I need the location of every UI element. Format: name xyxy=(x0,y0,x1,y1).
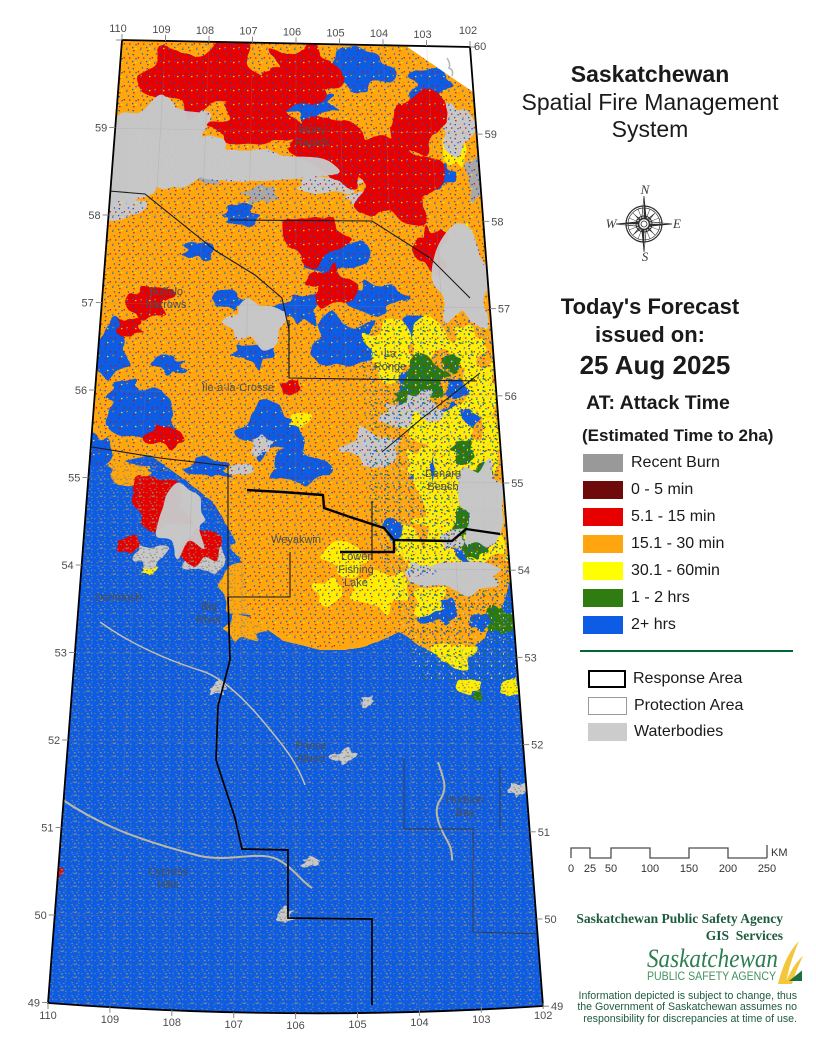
svg-text:Lower: Lower xyxy=(341,551,371,563)
svg-text:W: W xyxy=(606,216,618,231)
svg-text:Fishing: Fishing xyxy=(338,564,373,576)
svg-text:54: 54 xyxy=(61,560,73,572)
svg-text:108: 108 xyxy=(196,25,214,37)
svg-text:105: 105 xyxy=(348,1019,366,1031)
svg-text:57: 57 xyxy=(82,298,94,310)
svg-text:103: 103 xyxy=(413,29,431,41)
svg-text:Narrows: Narrows xyxy=(146,299,187,311)
svg-text:104: 104 xyxy=(370,28,388,40)
svg-text:S: S xyxy=(642,249,649,264)
svg-text:Beach: Beach xyxy=(427,481,458,493)
svg-text:Albert: Albert xyxy=(297,753,326,765)
svg-text:250: 250 xyxy=(758,863,776,875)
svg-text:107: 107 xyxy=(239,26,257,38)
svg-text:60: 60 xyxy=(474,41,486,53)
svg-text:Weyakwin: Weyakwin xyxy=(271,534,321,546)
svg-text:50: 50 xyxy=(605,863,617,875)
svg-text:50: 50 xyxy=(35,910,47,922)
svg-text:La: La xyxy=(384,348,397,360)
svg-text:53: 53 xyxy=(55,648,67,660)
svg-text:Hudson: Hudson xyxy=(446,794,484,806)
svg-text:E: E xyxy=(672,216,681,231)
svg-text:Denare: Denare xyxy=(425,468,461,480)
svg-text:59: 59 xyxy=(485,129,497,141)
svg-text:Ronge: Ronge xyxy=(374,361,406,373)
svg-text:25: 25 xyxy=(584,863,596,875)
svg-text:104: 104 xyxy=(410,1017,428,1029)
svg-text:Cypress: Cypress xyxy=(148,866,189,878)
svg-text:River: River xyxy=(196,614,222,626)
svg-text:103: 103 xyxy=(472,1014,490,1026)
svg-text:Big: Big xyxy=(201,601,217,613)
svg-text:108: 108 xyxy=(163,1017,181,1029)
svg-text:Rapids: Rapids xyxy=(295,137,330,149)
svg-text:Buffalo: Buffalo xyxy=(149,286,183,298)
svg-text:Lake: Lake xyxy=(344,577,368,589)
svg-text:150: 150 xyxy=(680,863,698,875)
svg-text:58: 58 xyxy=(491,216,503,228)
svg-text:110: 110 xyxy=(109,23,127,35)
svg-text:49: 49 xyxy=(28,998,40,1010)
svg-text:106: 106 xyxy=(286,1020,304,1032)
svg-text:PUBLIC SAFETY AGENCY: PUBLIC SAFETY AGENCY xyxy=(647,969,776,983)
svg-text:Bay: Bay xyxy=(456,807,475,819)
svg-text:52: 52 xyxy=(531,740,543,752)
svg-text:100: 100 xyxy=(641,863,659,875)
svg-text:51: 51 xyxy=(538,827,550,839)
svg-text:105: 105 xyxy=(326,27,344,39)
svg-text:54: 54 xyxy=(518,565,530,577)
svg-text:52: 52 xyxy=(48,735,60,747)
svg-text:55: 55 xyxy=(511,478,523,490)
svg-text:Île-à-la-Crosse: Île-à-la-Crosse xyxy=(201,381,274,394)
svg-text:0: 0 xyxy=(568,863,574,875)
svg-text:51: 51 xyxy=(41,823,53,835)
svg-text:53: 53 xyxy=(525,652,537,664)
svg-text:Prince: Prince xyxy=(295,740,326,752)
svg-text:110: 110 xyxy=(39,1010,57,1022)
svg-text:200: 200 xyxy=(719,863,737,875)
svg-text:Stony: Stony xyxy=(298,124,327,136)
svg-text:106: 106 xyxy=(283,27,301,39)
svg-text:109: 109 xyxy=(101,1014,119,1026)
svg-text:N: N xyxy=(640,182,651,197)
svg-text:59: 59 xyxy=(95,123,107,135)
svg-text:102: 102 xyxy=(459,25,477,37)
svg-text:Dorintosh: Dorintosh xyxy=(94,592,141,604)
svg-text:Hills: Hills xyxy=(158,879,179,891)
svg-text:KM: KM xyxy=(771,847,788,859)
svg-text:56: 56 xyxy=(75,385,87,397)
svg-text:55: 55 xyxy=(68,473,80,485)
svg-text:107: 107 xyxy=(225,1019,243,1031)
svg-text:109: 109 xyxy=(152,24,170,36)
svg-text:58: 58 xyxy=(88,210,100,222)
